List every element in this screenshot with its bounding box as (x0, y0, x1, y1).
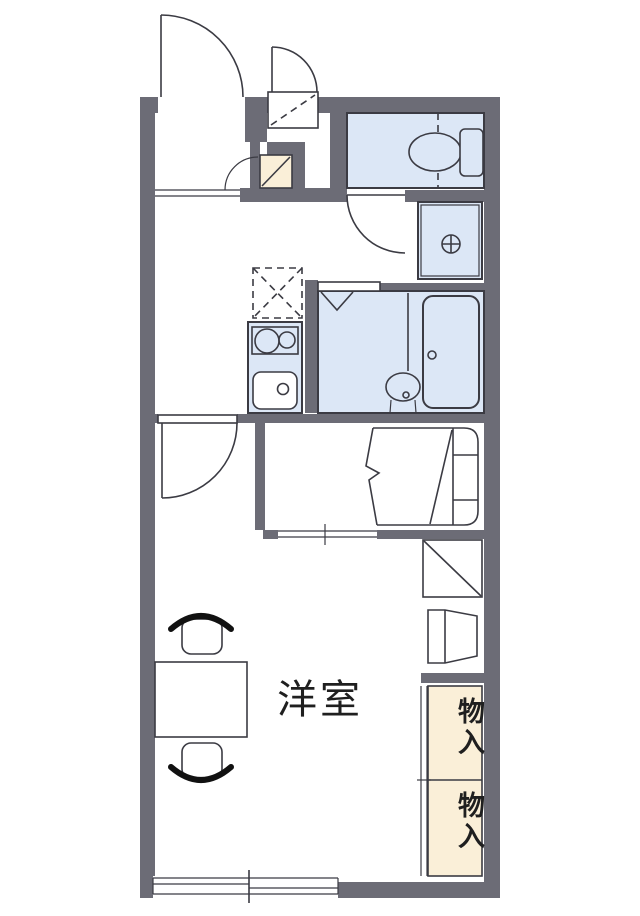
drain-symbol (442, 235, 460, 253)
western-room-label: 洋室 (277, 679, 363, 721)
refrigerator-space (253, 268, 302, 318)
toilet-door (347, 195, 405, 253)
kitchen-sink (253, 372, 297, 409)
alcove-threshold (278, 524, 377, 545)
toilet-tank (460, 129, 483, 176)
chair-bottom (171, 743, 231, 780)
storage-label-upper: 物入 (428, 697, 482, 759)
chair-top (171, 616, 231, 654)
sliding-window (153, 870, 338, 903)
washing-machine-pan (418, 202, 482, 279)
shelf-unit (423, 540, 482, 597)
genkan-step (155, 190, 240, 196)
floor-plan: 洋室 物入 物入 (0, 0, 640, 916)
floor-plan-svg (0, 0, 640, 916)
toilet-bowl (409, 133, 461, 171)
kitchen-counter (248, 322, 302, 413)
entrance-door (161, 15, 243, 97)
outdoor-storage (268, 47, 318, 128)
toilet-room (347, 113, 484, 188)
bathtub (423, 296, 479, 408)
bedroom-door (158, 415, 237, 498)
bathroom (318, 282, 484, 413)
table (155, 662, 247, 737)
storage-label-lower: 物入 (428, 791, 482, 853)
bed (366, 428, 478, 525)
cabinet (428, 610, 477, 663)
